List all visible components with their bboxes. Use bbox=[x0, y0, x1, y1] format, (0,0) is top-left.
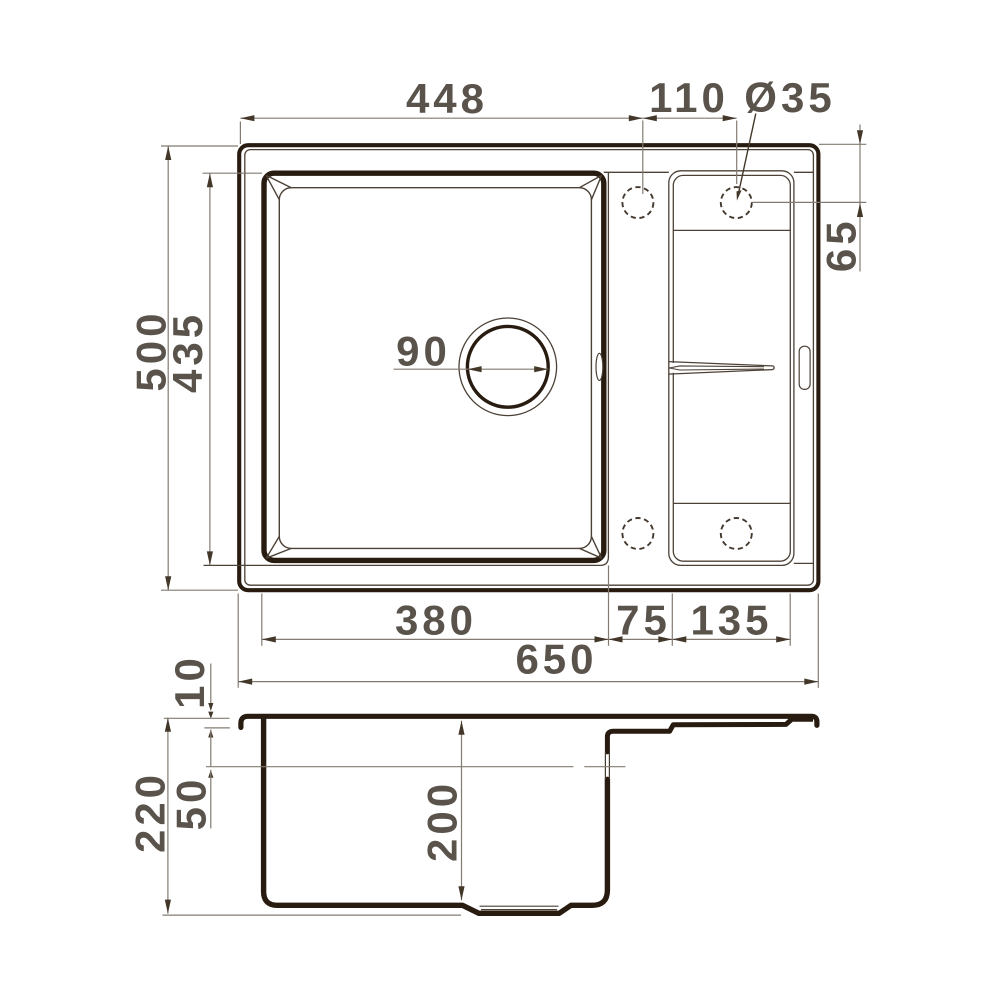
svg-text:380: 380 bbox=[395, 597, 477, 644]
svg-text:110: 110 bbox=[649, 74, 729, 121]
svg-text:90: 90 bbox=[396, 328, 451, 375]
svg-text:448: 448 bbox=[406, 75, 488, 122]
svg-text:200: 200 bbox=[419, 780, 466, 862]
svg-text:10: 10 bbox=[166, 654, 213, 709]
svg-text:435: 435 bbox=[164, 311, 211, 393]
svg-text:75: 75 bbox=[616, 597, 671, 644]
svg-text:220: 220 bbox=[127, 771, 174, 853]
svg-text:650: 650 bbox=[515, 636, 597, 683]
svg-text:Ø35: Ø35 bbox=[744, 74, 835, 121]
svg-text:50: 50 bbox=[167, 776, 214, 831]
svg-text:135: 135 bbox=[690, 597, 772, 644]
svg-text:65: 65 bbox=[818, 217, 865, 272]
